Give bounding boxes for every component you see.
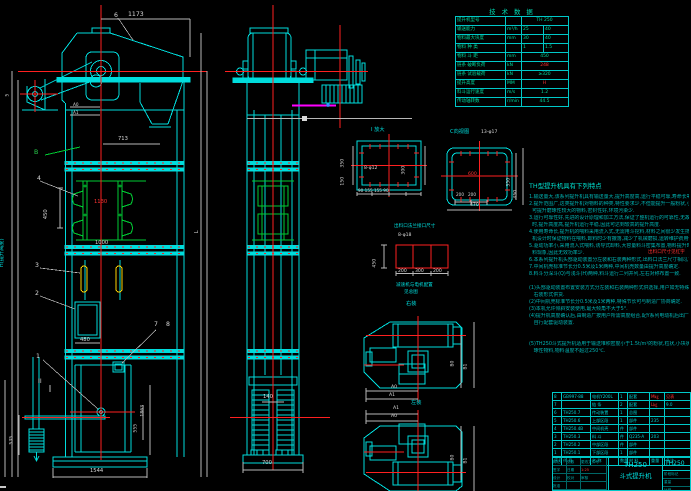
dim-535: 535 (10, 436, 15, 445)
bom-cell: 1 (553, 449, 562, 456)
dim-1130: 1130 (94, 200, 107, 205)
tech-row-9: 料斗运行速度m/s1.2 (456, 88, 568, 97)
feature-line-15: 右装形式供货. (529, 292, 689, 299)
bom-cell: 203 (650, 433, 665, 440)
tech-row-8: 提升高度MMH (456, 79, 568, 88)
bom-cell: GB997-88 (562, 393, 591, 400)
dim-length-label: L (195, 230, 200, 233)
plan1-b0: B0 (451, 361, 456, 367)
bom-row-4: 4TH250.4B中间机壳件部件 (553, 425, 690, 433)
bom-cell: 2 (553, 441, 562, 448)
tech-label: 链条 试验载荷 (456, 71, 506, 79)
bom-cell: 2 (619, 401, 628, 408)
bom-row-8: 8GB997-88电机Y200L1配套M㎏见表 (553, 393, 690, 401)
bom-cell: 9.0 (665, 401, 688, 408)
feature-line-23: 琢性物料,物料温度不超过250℃. (529, 348, 689, 355)
tech-value: 248 (522, 62, 566, 70)
tech-value-1: 30 (522, 35, 544, 43)
plan-view-left-install (364, 410, 474, 491)
bom-cell: L㎏ (650, 401, 665, 408)
plan1-b1: B1 (464, 364, 469, 370)
tb-cell-sign: 签字 (553, 466, 567, 474)
plan1-a0: A0 (391, 386, 397, 391)
detail-c-title: C向视图 (450, 130, 469, 135)
bom-parts-list: 8GB997-88电机Y200L1配套M㎏见表7链 条2配套L㎏9.06TH25… (552, 392, 691, 466)
tech-label: 提升高度 (456, 80, 506, 88)
flange-bolts: 8-φ18 (398, 234, 411, 239)
detail-i-300: 300 (402, 166, 407, 175)
tech-unit: kN (506, 71, 522, 79)
bom-cell: 配套 (628, 401, 650, 408)
title-block: 标记 处数 更改文件号 签字 日期 1:25 设计 校对 审核 批准 TH250… (552, 457, 691, 491)
feature-line-3: 可提升磨琢性较大的物料,密封性好,环境污染少. (529, 208, 689, 215)
technical-data-grid: 提升机型号TH 250输送能力m³/h2540物料最大块度mm3040物料 种 … (455, 16, 569, 107)
part-label-6: 6 (114, 13, 118, 19)
part-label-2: 2 (35, 291, 39, 297)
tech-unit (506, 17, 522, 25)
bom-cell: 5 (553, 417, 562, 424)
dim-a1: A1 (73, 111, 79, 115)
front-view-centerlines (18, 5, 207, 460)
feature-line-18: (4)提升机高度确认后,由制造厂按用户所需高度组合,配Y系列电动机后出厂,用户亦… (529, 313, 689, 320)
tech-unit (506, 44, 522, 52)
bom-cell (665, 441, 688, 448)
bom-cell: 中部区段 (591, 441, 619, 448)
tb-cell-scale: 1:25 (581, 466, 607, 474)
gear-note-line1: 减速机与电机配置 (396, 284, 433, 289)
tech-value-2: 40 (544, 26, 566, 34)
bom-cell: 1 (619, 417, 628, 424)
dim-1545: 1545 (0, 413, 1, 425)
technical-data-title: 技 术 数 据 (455, 7, 569, 16)
feature-line-16: (2)中间机壳标准节长分0.5米及1米两种,特殊节长可与制造厂协商确定. (529, 299, 689, 306)
title-block-revision-grid: 标记 处数 更改文件号 签字 日期 1:25 设计 校对 审核 批准 (553, 458, 609, 490)
bom-row-2: 2TH250.2中部区段件部件 (553, 441, 690, 449)
tech-label: 物料 种 类 (456, 44, 506, 52)
plan2-b1: B1 (464, 458, 469, 464)
title-block-center: TH250 斗式提升机 (609, 458, 663, 490)
bom-cell (665, 433, 688, 440)
bom-cell: TH250.3 (562, 433, 591, 440)
detail-i-bolts: 8-φ12 (364, 167, 377, 172)
feature-line-1: 1.输送量大,该系列提升机具有输送量大,提升高度高,运行平稳可靠,寿命长等显著优… (529, 194, 689, 201)
detail-c-600: 600 (468, 173, 477, 178)
technical-data-table: 技 术 数 据 提升机型号TH 250输送能力m³/h2540物料最大块度mm3… (455, 7, 569, 107)
tech-unit: MM (506, 80, 522, 88)
dim-a0: A0 (73, 103, 79, 107)
feature-line-11: 7.中间机壳标准节长分0.5米及1米两种,中间机壳数量由提升高度确定. (529, 264, 689, 271)
bom-cell: 中间机壳 (591, 425, 619, 432)
dim-140: 140 (263, 395, 273, 400)
bom-cell (665, 425, 688, 432)
drawing-number: TH250 (663, 458, 690, 471)
plan2-a0: A0 (391, 415, 397, 420)
feature-line-14: (1)头部驱动装置布置安装方式分左装和右装两种形式供选择,用户如无特殊要求时,制… (529, 285, 689, 292)
bom-cell: 传动装置 (591, 409, 619, 416)
features-notes: TH型提升机具有下列特点 1.输送量大,该系列提升机具有输送量大,提升高度高,运… (529, 181, 689, 393)
bom-cell: 件 (619, 441, 628, 448)
tb-right-scale: 比例 (663, 487, 690, 491)
bom-cell (650, 441, 665, 448)
tech-label: 料斗运行速度 (456, 89, 506, 97)
plan2-a1: A1 (393, 407, 399, 412)
dim-713: 713 (118, 137, 128, 142)
tech-row-7: 链条 试验载荷kN≥320 (456, 70, 568, 79)
bom-cell (650, 409, 665, 416)
detail-i-350: 350 (341, 159, 346, 168)
feature-line-20 (529, 327, 689, 334)
detail-c-bolts: 13-φ17 (481, 131, 497, 136)
tech-value-2: 40 (544, 35, 566, 43)
tech-label: 链条 破断负荷 (456, 62, 506, 70)
bom-cell: TH250.1 (562, 449, 591, 456)
tech-unit: r/min (506, 98, 522, 106)
tech-row-3: 物料最大块度mm3040 (456, 34, 568, 43)
flange-200a: 200 (398, 270, 407, 275)
dim-480: 480 (80, 338, 90, 343)
detail-c-450: 450 (514, 190, 519, 199)
bom-cell (562, 401, 591, 408)
feature-line-12: 8.料斗分深斗(Q)与浅斗(H)两种,料斗运行二列并列,左右对称布置一致. (529, 271, 689, 278)
bom-cell: 配套 (628, 393, 650, 400)
tb-cell-docno: 更改文件号 (581, 458, 607, 466)
feature-line-10: 6.本系列提升机头部驱动装置分左装和右装两种形式,出料口法兰尺寸相同,可按需要选… (529, 257, 689, 264)
bom-cell: TH250.6 (562, 417, 591, 424)
detail-c-470: 470 (470, 204, 479, 209)
detail-i-segments: 90 155 155 90 (358, 189, 389, 193)
bom-cell: 3 (553, 433, 562, 440)
tech-value-2: 1.5 (544, 44, 566, 52)
features-lines: 1.输送量大,该系列提升机具有输送量大,提升高度高,运行平稳可靠,寿命长等显著优… (529, 194, 689, 355)
dim-700: 700 (262, 461, 272, 466)
tb-cell-count: 处数 (567, 458, 581, 466)
flange-200b: 200 (433, 270, 442, 275)
tech-unit: m³/h (506, 26, 522, 34)
plan-left-install-label: 左装 (411, 401, 421, 406)
tech-value: 1.2 (522, 89, 566, 97)
detail-c-350: 350 (507, 178, 512, 187)
tech-row-5: 物料 斗 距mm450 (456, 52, 568, 61)
detail-c-segments: 200 200 (456, 193, 476, 197)
bom-cell: TH250.7 (562, 409, 591, 416)
feature-line-7: 机设计时保证物料在喂料,卸料时少有撒落,减少了机械磨损,运转维护费用低. (529, 236, 689, 243)
corner-mark (0, 486, 6, 488)
tb-cell-design: 设计 (553, 474, 567, 482)
dim-1544: 1544 (90, 469, 103, 474)
detail-c (441, 141, 523, 211)
tech-value: 44.5 (522, 98, 566, 106)
bom-cell: M㎏ (650, 393, 665, 400)
front-view-head (22, 28, 190, 127)
bom-cell: 部件 (628, 425, 650, 432)
feature-line-19: 自行配套驱动装置. (529, 320, 689, 327)
plan-right-install-label: 右装 (406, 302, 416, 307)
bom-cell (650, 449, 665, 456)
bom-cell: 电机Y200L (591, 393, 619, 400)
bom-row-5: 5TH250.6上部区段1部件235 (553, 417, 690, 425)
model-number: TH250 (609, 461, 662, 469)
bom-cell (665, 409, 688, 416)
tb-right-weight: 重量 (663, 479, 690, 487)
detail-i-150: 150 (341, 177, 346, 186)
dim-1173: 1173 (128, 12, 144, 18)
flange-detail-title: 出料口法兰接口尺寸 (394, 225, 435, 230)
flange-450: 450 (373, 259, 378, 268)
cad-drawing-canvas: 1173 6 A0 A1 5 713 B 4 450 1130 1000 3 2… (0, 0, 691, 491)
tech-label: 物料最大块度 (456, 35, 506, 43)
bom-cell: 1 (619, 393, 628, 400)
plan1-a1: A1 (389, 394, 395, 399)
bom-cell: 件 (619, 425, 628, 432)
bom-cell: 1 (619, 409, 628, 416)
bom-row-6: 6TH250.7传动装置1总图 (553, 409, 690, 417)
dim-1863: 1863 (141, 405, 146, 417)
tb-right-stage: 阶段标记 (663, 471, 690, 479)
features-red-note: 出料口尺寸见红字 (648, 251, 685, 256)
part-label-3: 3 (35, 263, 39, 269)
bom-cell: 料 斗 (591, 433, 619, 440)
tech-unit: m/s (506, 89, 522, 97)
dim-450: 450 (44, 209, 49, 219)
tech-unit: mm (506, 35, 522, 43)
tech-value: 450 (522, 53, 566, 61)
bom-cell: Q235-A (628, 433, 650, 440)
tech-label: 提升机型号 (456, 17, 506, 25)
tb-cell-approve: 批准 (553, 482, 567, 490)
bom-cell (650, 425, 665, 432)
dim-height-label: H(提升高度) (0, 239, 5, 268)
feature-line-4: 3.运行可靠性好,先进的设计原理和加工方法,保证了整机运行的可靠性,无故障时间超… (529, 215, 689, 222)
feature-line-5: 时,提升高度高,提升机运行平稳,因此可达到较高的提升高度. (529, 222, 689, 229)
bom-cell (665, 417, 688, 424)
tb-cell-date: 日期 (567, 466, 581, 474)
title-block-right: TH250 阶段标记 重量 比例 (663, 458, 690, 490)
bom-cell: 总图 (628, 409, 650, 416)
bom-row-3: 3TH250.3料 斗件Q235-A203 (553, 433, 690, 441)
bom-cell: 4 (553, 425, 562, 432)
product-name: 斗式提升机 (609, 471, 662, 480)
tech-unit: mm (506, 53, 522, 61)
flange-300: 300 (415, 270, 424, 275)
bom-cell: TH250.2 (562, 441, 591, 448)
tech-row-4: 物料 种 类11.5 (456, 43, 568, 52)
tech-value: ≥320 (522, 71, 566, 79)
bom-cell: TH250.4B (562, 425, 591, 432)
bom-cell: 部件 (628, 449, 650, 456)
tech-value-1: 25 (522, 26, 544, 34)
feature-line-21 (529, 334, 689, 341)
part-label-7: 7 (154, 322, 158, 328)
part-label-8: 8 (166, 322, 170, 328)
tech-label: 传动轴转数 (456, 98, 506, 106)
bom-cell: 见表 (665, 393, 688, 400)
tech-label: 物料 斗 距 (456, 53, 506, 61)
bom-cell: 下部区段 (591, 449, 619, 456)
dim-555: 555 (134, 424, 139, 433)
tech-row-2: 输送能力m³/h2540 (456, 25, 568, 34)
part-label-4: 4 (37, 176, 41, 182)
feature-line-8: 5.驱动功率小,采用流入式喂料,诱导式卸料,大容量料斗密集布置,物料提升时几乎无… (529, 243, 689, 250)
features-title: TH型提升机具有下列特点 (529, 181, 689, 190)
bom-cell: 链 条 (591, 401, 619, 408)
bom-cell: 235 (650, 417, 665, 424)
feature-line-22: (5)TH250斗式提升机适用于输送堆积密度小于1.5t/m³的粉状,粒状,小块… (529, 341, 689, 348)
feature-line-17: (3)本机允许倾斜安装使用,最大倾角不大于5°. (529, 306, 689, 313)
plan-view-right-install (364, 316, 474, 402)
bom-cell: 上部区段 (591, 417, 619, 424)
tb-cell-blank2 (581, 482, 607, 490)
plan2-b0: B0 (451, 455, 456, 461)
tb-cell-audit: 审核 (581, 474, 607, 482)
detail-i-title: I 放大 (371, 128, 385, 133)
tb-cell-mark: 标记 (553, 458, 567, 466)
bom-row-7: 7链 条2配套L㎏9.0 (553, 401, 690, 409)
section-label-II: II (38, 379, 42, 385)
gear-note-line2: 见总图 (404, 291, 418, 296)
tech-row-10: 传动轴转数r/min44.5 (456, 97, 568, 106)
part-label-1: 1 (36, 354, 40, 360)
feature-line-2: 2.提升范围广,这类提升机对物料的种类,特性要求少,不但能提升一般粉状,小颗粒状… (529, 201, 689, 208)
bom-cell: 8 (553, 393, 562, 400)
tech-value-1: 1 (522, 44, 544, 52)
feature-line-13 (529, 278, 689, 285)
tech-row-6: 链条 破断负荷kN248 (456, 61, 568, 70)
tb-cell-blank1 (567, 482, 581, 490)
tech-unit: kN (506, 62, 522, 70)
tech-value: H (522, 80, 566, 88)
bom-cell: 部件 (628, 417, 650, 424)
bom-cell: 件 (619, 433, 628, 440)
bom-cell: 1 (619, 449, 628, 456)
tech-row-1: 提升机型号TH 250 (456, 17, 568, 25)
bom-cell: 6 (553, 409, 562, 416)
dim-1000: 1000 (95, 241, 108, 246)
tech-value: TH 250 (522, 17, 566, 25)
bom-cell: 7 (553, 401, 562, 408)
tech-label: 输送能力 (456, 26, 506, 34)
bom-cell: 部件 (628, 441, 650, 448)
part-label-5: 5 (6, 94, 11, 97)
feature-line-6: 4.使用寿命长,提升机的喂料采用流入式,无需用斗挖料,材料之间很少发生挤压和碰撞… (529, 229, 689, 236)
tb-cell-check: 校对 (567, 474, 581, 482)
bom-row-1: 1TH250.1下部区段1部件 (553, 449, 690, 457)
bom-cell (665, 449, 688, 456)
part-label-B: B (34, 150, 38, 156)
